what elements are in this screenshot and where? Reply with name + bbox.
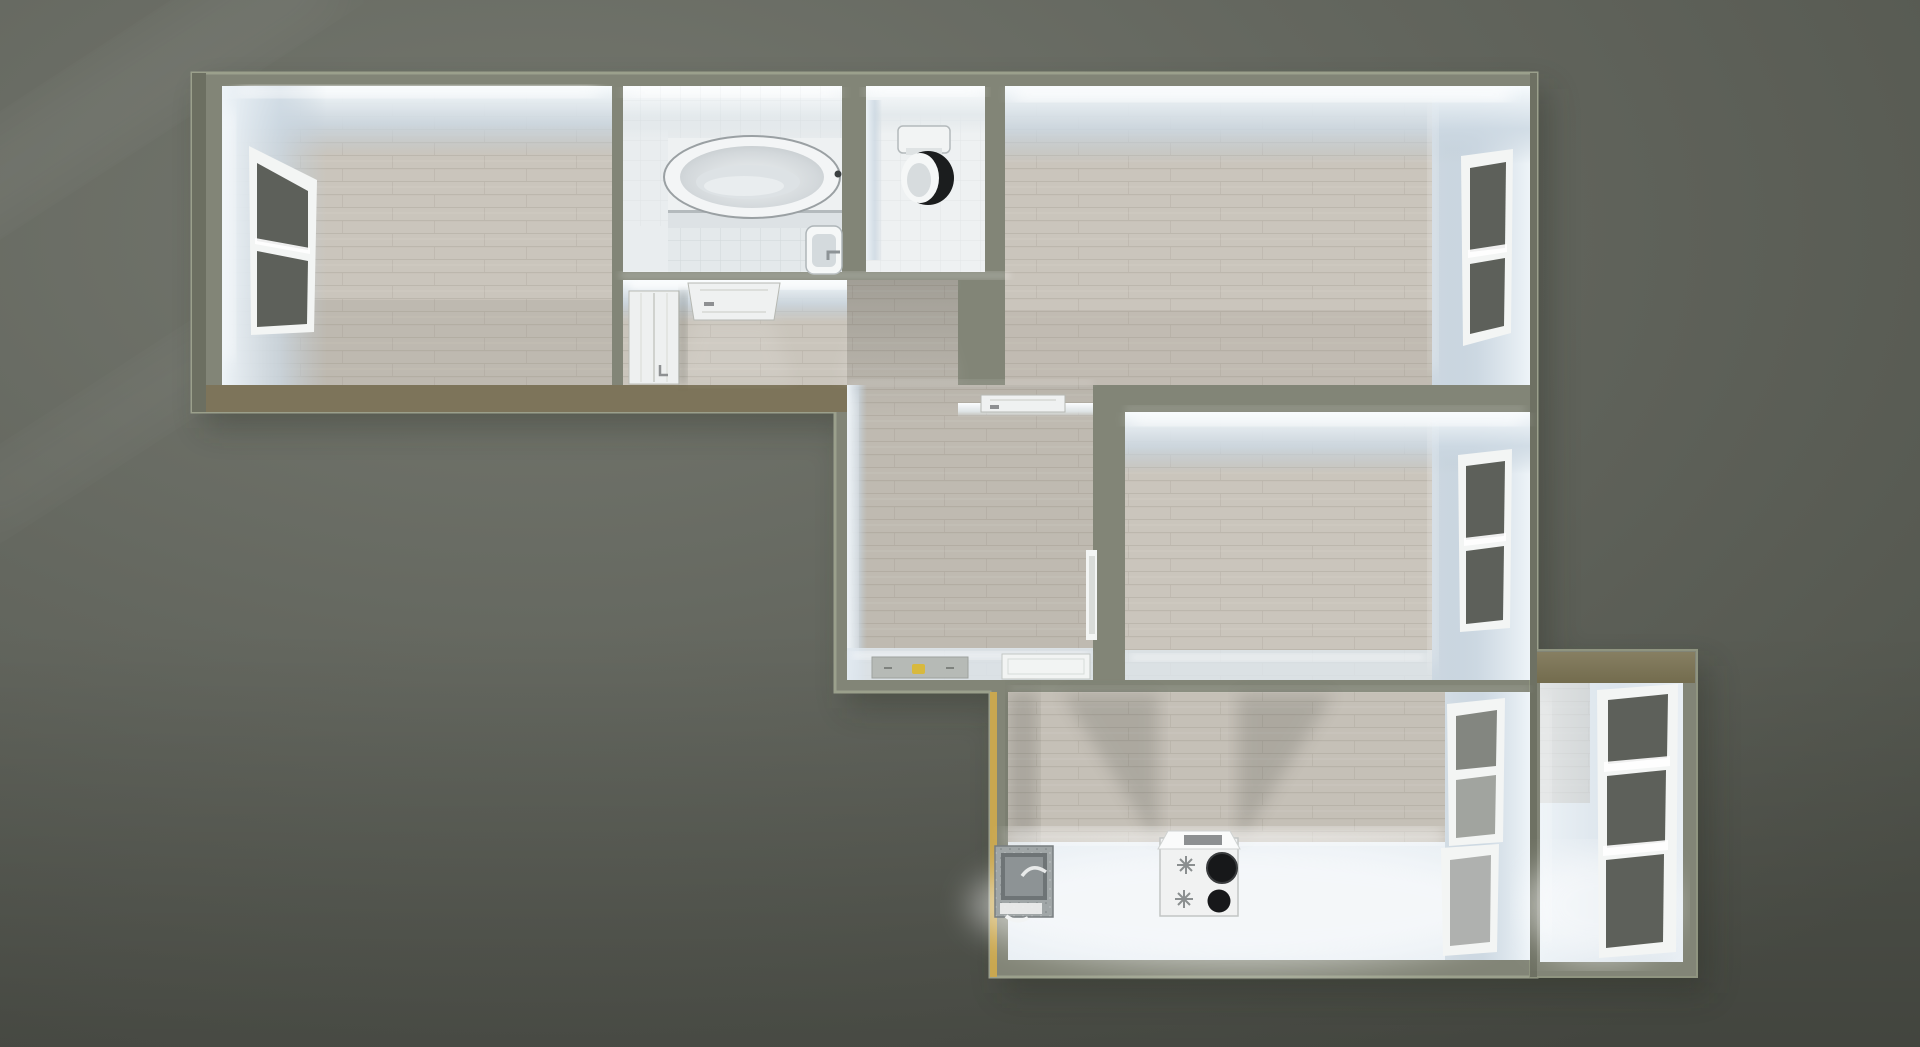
room-bedroom-north-east — [1005, 86, 1530, 385]
floorplan-scene — [0, 0, 1920, 1047]
window-kitchen-upper — [1447, 698, 1505, 846]
tub-faucet — [835, 171, 842, 178]
window-balcony — [1597, 684, 1678, 958]
window-east-bedroom — [1458, 449, 1512, 632]
white-mat — [1002, 654, 1090, 679]
balcony-north-wall-top — [1532, 652, 1695, 683]
door-living-north — [981, 395, 1065, 412]
render-viewport[interactable] — [0, 0, 1920, 1047]
bathtub — [664, 136, 842, 228]
wash-basin — [806, 226, 842, 274]
toilet — [898, 126, 954, 205]
door-living-east — [1086, 550, 1097, 640]
gray-mat — [872, 657, 968, 678]
room-bedroom-east — [1125, 412, 1530, 680]
room-balcony — [1525, 683, 1683, 962]
south-wall-top-west — [194, 385, 847, 412]
window-kitchen-lower — [1441, 844, 1499, 956]
room-bedroom-west — [222, 86, 612, 385]
east-wall-outer-shade — [1530, 73, 1537, 977]
room-wc — [866, 86, 985, 272]
kitchen-sink — [995, 846, 1053, 921]
yellow-object — [912, 664, 925, 674]
kitchen-west-gold-edge — [990, 692, 997, 977]
room-bathroom — [623, 86, 842, 274]
door-north-1 — [688, 283, 780, 320]
stove — [1158, 831, 1240, 916]
west-wall-outer-shade — [192, 73, 206, 412]
door-handle — [704, 302, 714, 306]
room-kitchen — [970, 692, 1530, 967]
window-ne-bedroom — [1461, 149, 1513, 346]
wardrobe — [629, 291, 687, 384]
